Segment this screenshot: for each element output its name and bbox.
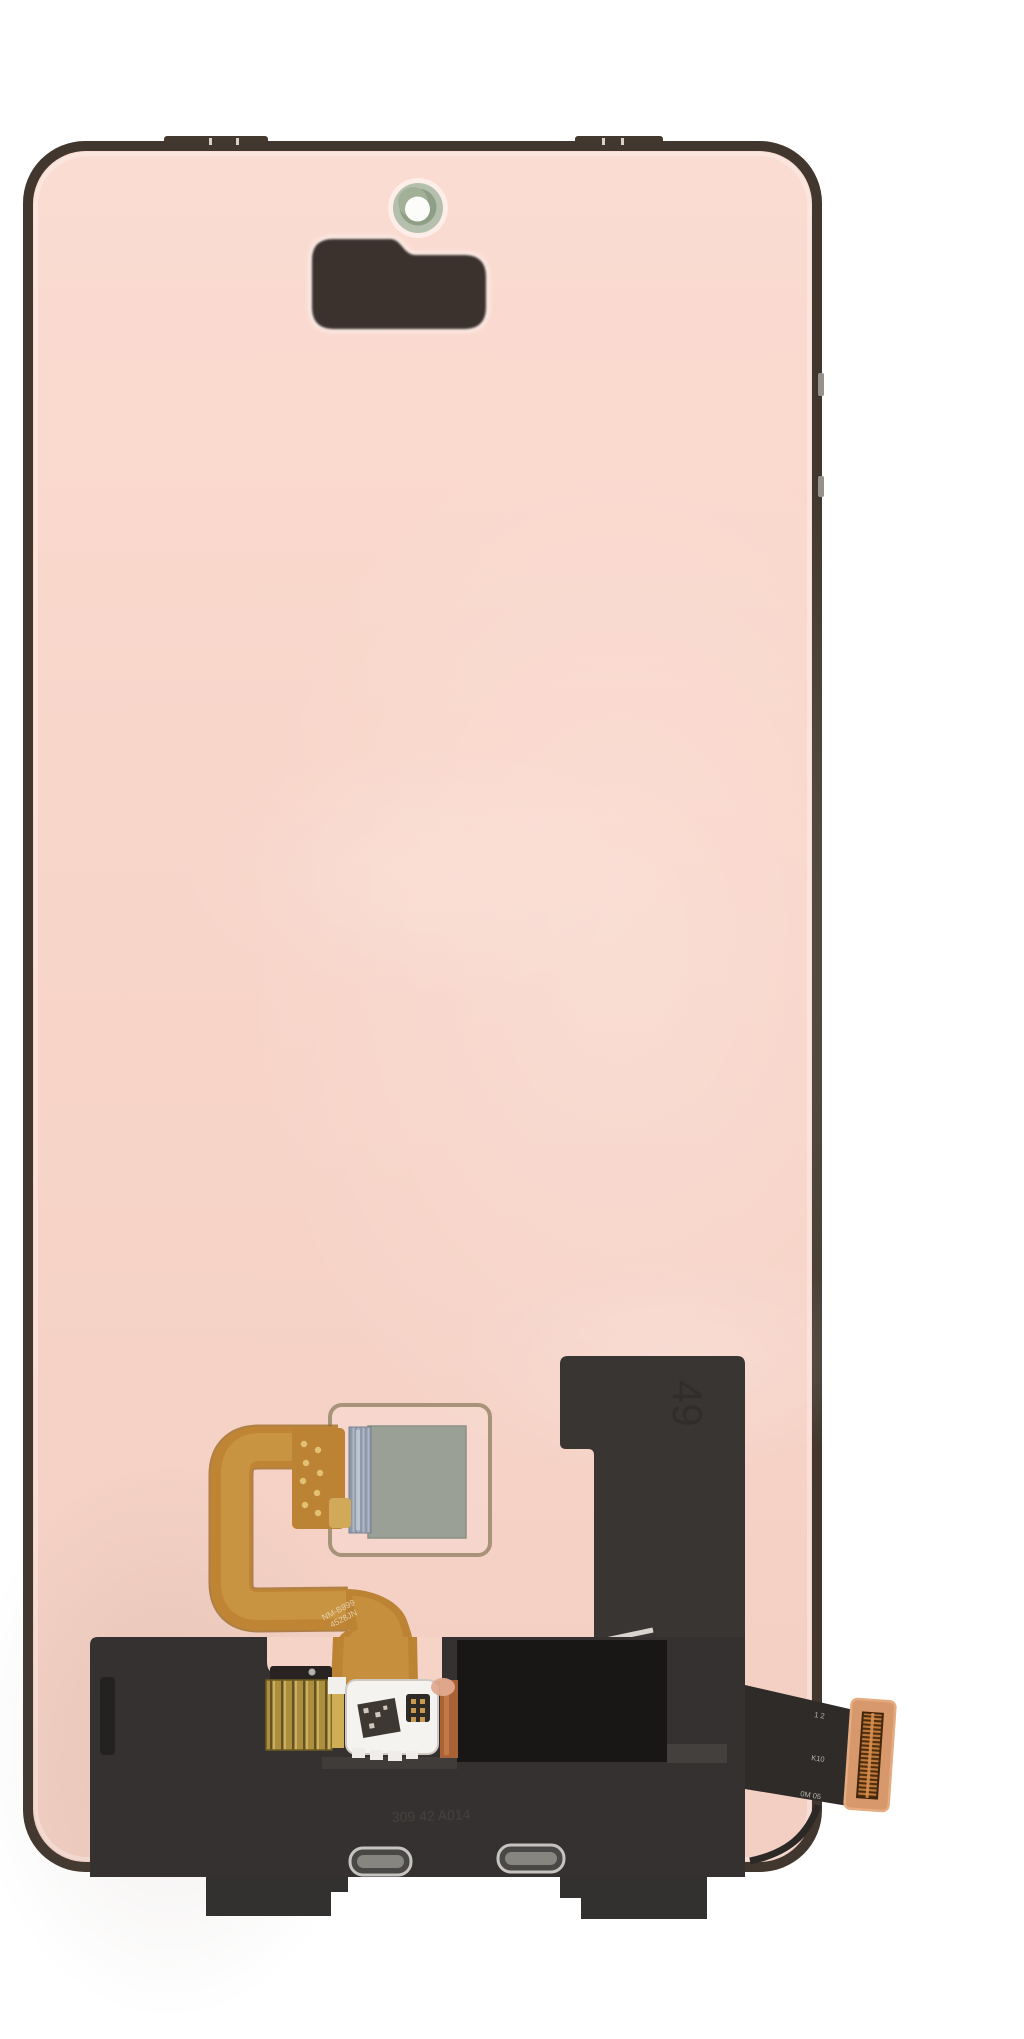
svg-text:1 2: 1 2 (814, 1710, 826, 1721)
svg-text:309 42 A014: 309 42 A014 (392, 1806, 471, 1825)
svg-text:49: 49 (664, 1380, 711, 1427)
